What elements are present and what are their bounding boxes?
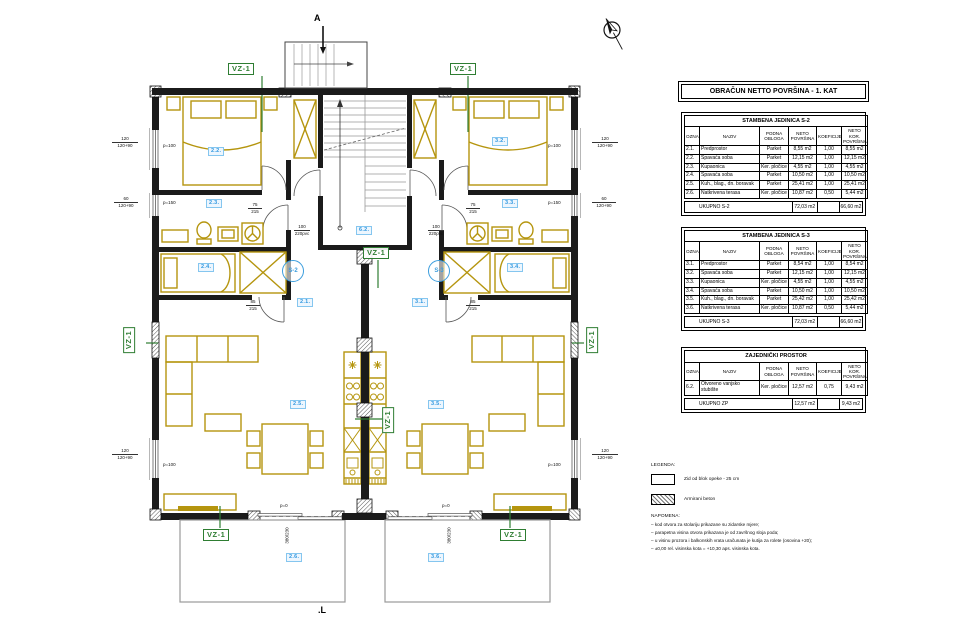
table-cell: 1,00 (817, 270, 842, 279)
sheet-title: OBRAČUN NETTO POVRŠINA - 1. KAT (681, 84, 866, 99)
vz-label-left-wall: VZ-1 (123, 327, 135, 353)
total-neto: 72,03 m2 (792, 317, 817, 328)
dim-value: pvc (302, 231, 309, 236)
table-cell: 3.3. (685, 278, 700, 287)
table-cell: 25,42 m2 (789, 296, 817, 305)
table-cell: Spavaća soba (700, 270, 760, 279)
table-cell: 1,00 (817, 278, 842, 287)
table-cell: Parket (760, 270, 789, 279)
table-cell: 12,57 m2 (789, 381, 817, 396)
table-cell: Spavaća soba (700, 172, 760, 181)
table-cell: 3.5. (685, 296, 700, 305)
table-cell: 12,15 m2 (842, 154, 868, 163)
room-label-2-6: 2.6. (286, 553, 302, 562)
table-cell: 2.1. (685, 146, 700, 155)
room-label-3-5: 3.5. (428, 400, 444, 409)
table-row: 3.5.Kuh., blag., dn. boravakParket25,42 … (685, 296, 868, 305)
vz-label-center: VZ-1 (363, 247, 389, 259)
dim-door-85: 85215 (246, 299, 260, 311)
dim-window-left-top: 120120+90 (112, 136, 138, 148)
column-header: NETO POVRŠINA (789, 127, 817, 146)
table-cell: 10,50 m2 (789, 172, 817, 181)
table-cell: Ker. pločice (760, 278, 789, 287)
column-header: PODNA OBLOGA (760, 362, 789, 381)
table-cell: 2.2. (685, 154, 700, 163)
table-cell: Parket (760, 287, 789, 296)
unit-left-group (146, 76, 388, 602)
table-cell: 1,00 (817, 154, 842, 163)
table-cell: Natkrivena terasa (700, 189, 760, 198)
legend-label: Zid od blok opeke - 25 cm (684, 477, 739, 482)
dim-value: 85 (246, 299, 260, 306)
table-cell: 8,55 m2 (842, 146, 868, 155)
vz-label-right-wall: VZ-1 (586, 327, 598, 353)
dim-value: 120+90 (596, 203, 611, 208)
column-header: NETO KOR. POVRŠINA (842, 242, 868, 261)
dim-value: 215 (469, 209, 477, 214)
total-koef (817, 399, 839, 410)
column-header: OZNAKA (685, 127, 700, 146)
table-row: 2.2.Spavaća sobaParket12,15 m21,0012,15 … (685, 154, 868, 163)
vz-label-top-right: VZ-1 (450, 63, 476, 75)
table-cell: 25,41 m2 (842, 181, 868, 190)
area-tables-panel: OBRAČUN NETTO POVRŠINA - 1. KAT STAMBENA… (681, 84, 866, 413)
table-cell: 3.4. (685, 287, 700, 296)
dim-value: 215 (251, 209, 259, 214)
table-cell: 4,55 m2 (789, 163, 817, 172)
table-cell: 6.2. (685, 381, 700, 396)
dim-value: 60 (592, 196, 616, 203)
note-line: – parapetna visina otvora prikazana je o… (651, 529, 911, 537)
walls-unit (152, 95, 388, 520)
dim-window-right-top: 120120+90 (592, 136, 618, 148)
legend-title: LEGENDA: (651, 463, 866, 468)
furniture (161, 97, 361, 510)
table-cell: 5,44 m2 (842, 189, 868, 198)
notes-block: NAPOMENA: – kod otvora za stolariju prik… (651, 514, 911, 553)
legend-item-wall: Zid od blok opeke - 25 cm (651, 474, 866, 485)
table-row: 2.3.KupaonicaKer. pločice4,55 m21,004,55… (685, 163, 868, 172)
column-header: OZNAKA (685, 362, 700, 381)
table-shared-space: ZAJEDNIČKI PROSTOR OZNAKA NAZIV PODNA OB… (681, 347, 866, 413)
room-label-3-3: 3.3. (502, 199, 518, 208)
table-cell: 0,75 (817, 381, 842, 396)
table-row: 3.1.PredprostorParket8,54 m21,008,54 m2 (685, 261, 868, 270)
note-line: – u visinu prozora i balkonskih vrata ur… (651, 537, 911, 545)
table-cell: 8,54 m2 (789, 261, 817, 270)
table-title: STAMBENA JEDINICA S-2 (685, 116, 868, 127)
table-row: 2.4.Spavaća sobaParket10,50 m21,0010,50 … (685, 172, 868, 181)
table-cell: 1,00 (817, 287, 842, 296)
dim-value: 100 (294, 224, 310, 231)
table-cell: 5,44 m2 (842, 305, 868, 314)
column-header: NAZIV (700, 127, 760, 146)
column-header: NETO POVRŠINA (789, 242, 817, 261)
table-cell: 0,50 (817, 189, 842, 198)
column-header: OZNAKA (685, 242, 700, 261)
table-cell: Otvoreno vanjsko stubište (700, 381, 760, 396)
column-header: KOEFICIJENT (817, 242, 842, 261)
table-row: 2.1.PredprostorParket8,55 m21,008,55 m2 (685, 146, 868, 155)
table-cell: Ker. pločice (760, 163, 789, 172)
table-cell: Parket (760, 154, 789, 163)
table-cell: 12,15 m2 (789, 270, 817, 279)
dim-sliding-door: 380/230 (447, 521, 452, 551)
unit-right-group (342, 76, 584, 602)
table-cell: Predprostor (700, 261, 760, 270)
room-label-6-2: 6.2. (356, 226, 372, 235)
table-cell: Parket (760, 172, 789, 181)
total-koef (817, 202, 839, 213)
dim-value: 120+90 (597, 455, 612, 460)
table-cell: 12,15 m2 (789, 154, 817, 163)
staircase (324, 95, 406, 230)
table-cell: Kupaonica (700, 278, 760, 287)
dim-sliding-door: 380/230 (285, 521, 290, 551)
stair-enclosure-top (285, 42, 367, 88)
table-cell: 3.1. (685, 261, 700, 270)
table-cell: Spavaća soba (700, 154, 760, 163)
table-cell: Ker. pločice (760, 305, 789, 314)
table-cell: Parket (760, 296, 789, 305)
table-cell: 8,54 m2 (842, 261, 868, 270)
dim-door-100: 100220pvc (428, 224, 444, 236)
table-cell: 4,55 m2 (789, 278, 817, 287)
floor-plan-drawing (0, 0, 660, 640)
table-row: 2.6.Natkrivena terasaKer. pločice10,87 m… (685, 189, 868, 198)
total-koef (817, 317, 839, 328)
table-row: 3.6.Natkrivena terasaKer. pločice10,87 m… (685, 305, 868, 314)
column-header: NETO KOR. POVRŠINA (842, 362, 868, 381)
column-header: NAZIV (700, 362, 760, 381)
table-cell: 0,50 (817, 305, 842, 314)
column-header: NETO KOR. POVRŠINA (842, 127, 868, 146)
legend-item-concrete: Armirani beton (651, 494, 866, 505)
dim-door-75: 75215 (248, 202, 262, 214)
table-row: 6.2.Otvoreno vanjsko stubišteKer. pločic… (685, 381, 868, 396)
vz-label-bottom-right: VZ-1 (500, 529, 526, 541)
table-cell: 9,43 m2 (842, 381, 868, 396)
unit-badge-s3: S-3 (428, 260, 450, 282)
table-row: 3.3.KupaonicaKer. pločice4,55 m21,004,55… (685, 278, 868, 287)
section-label-top: A (314, 13, 321, 23)
table-title: ZAJEDNIČKI PROSTOR (685, 351, 868, 362)
sliding-door (258, 514, 342, 520)
north-arrow-icon (602, 17, 625, 52)
table-cell: 2.4. (685, 172, 700, 181)
room-label-2-3: 2.3. (206, 199, 222, 208)
dim-value: 120 (112, 448, 138, 455)
table-cell: Ker. pločice (760, 381, 789, 396)
table-cell: 1,00 (817, 181, 842, 190)
table-cell: 4,55 m2 (842, 278, 868, 287)
table-cell: 25,42 m2 (842, 296, 868, 305)
column-header: KOEFICIJENT (817, 362, 842, 381)
dim-value: 215 (469, 306, 477, 311)
dim-value: 75 (248, 202, 262, 209)
table-cell: 10,50 m2 (789, 287, 817, 296)
table-cell: 8,55 m2 (789, 146, 817, 155)
total-label: UKUPNO S-3 (685, 317, 792, 328)
table-total-row: UKUPNO S-3 72,03 m2 66,60 m2 (684, 316, 863, 329)
table-cell: Ker. pločice (760, 189, 789, 198)
unit-badge-s2: S-2 (282, 260, 304, 282)
floor-plan-sheet: A .L 2.2. 2.3. 2.4. 2.1. 2.5. 2.6. 6.2. … (0, 0, 960, 640)
dim-parapet: p=150 (548, 200, 561, 205)
table-cell: Kupaonica (700, 163, 760, 172)
table-row: 3.4.Spavaća sobaParket10,50 m21,0010,50 … (685, 287, 868, 296)
dim-door-75: 75215 (466, 202, 480, 214)
dim-value: 120+90 (118, 203, 133, 208)
total-kor: 66,60 m2 (839, 202, 862, 213)
dim-door-100: 100220pvc (294, 224, 310, 236)
table-unit-s3: STAMBENA JEDINICA S-3 OZNAKA NAZIV PODNA… (681, 227, 866, 331)
table-cell: 1,00 (817, 296, 842, 305)
table-title: STAMBENA JEDINICA S-3 (685, 231, 868, 242)
total-kor: 9,43 m2 (839, 399, 862, 410)
dim-parapet-zero: p=0 (442, 503, 450, 508)
total-neto: 12,57 m2 (792, 399, 817, 410)
legend-label: Armirani beton (684, 497, 715, 502)
table-cell: 1,00 (817, 163, 842, 172)
dim-value: 120 (592, 136, 618, 143)
vz-label-kitchen-shaft: VZ-1 (382, 407, 394, 433)
table-cell: 10,50 m2 (842, 287, 868, 296)
vz-label-bottom-left: VZ-1 (203, 529, 229, 541)
dim-window-left-bottom: 120120+90 (112, 448, 138, 460)
dim-window-right-mid: 60120+90 (592, 196, 616, 208)
dim-value: 120+90 (117, 143, 132, 148)
table-cell: Parket (760, 181, 789, 190)
legend: LEGENDA: Zid od blok opeke - 25 cm Armir… (651, 463, 866, 514)
note-line: – kod otvora za stolariju prikazane su z… (651, 521, 911, 529)
table-cell: 1,00 (817, 146, 842, 155)
dim-parapet: p=100 (548, 462, 561, 467)
table-cell: 10,50 m2 (842, 172, 868, 181)
table-cell: Natkrivena terasa (700, 305, 760, 314)
table-cell: 4,55 m2 (842, 163, 868, 172)
dim-window-right-bottom: 120120+90 (592, 448, 618, 460)
table-cell: 3.6. (685, 305, 700, 314)
table-total-row: UKUPNO S-2 72,03 m2 66,60 m2 (684, 201, 863, 214)
terrace (178, 506, 345, 602)
dim-door-85: 85215 (466, 299, 480, 311)
dim-parapet-zero: p=0 (280, 503, 288, 508)
dim-parapet: p=100 (163, 143, 176, 148)
dim-parapet: p=100 (163, 462, 176, 467)
room-label-3-6: 3.6. (428, 553, 444, 562)
section-label-bottom: .L (318, 605, 326, 615)
room-label-3-1: 3.1. (412, 298, 428, 307)
dim-value: 120 (112, 136, 138, 143)
table-cell: 25,41 m2 (789, 181, 817, 190)
table-row: 2.5.Kuh., blag., dn. boravakParket25,41 … (685, 181, 868, 190)
wall-swatch-icon (651, 474, 675, 485)
table-cell: 12,15 m2 (842, 270, 868, 279)
total-label: UKUPNO S-2 (685, 202, 792, 213)
dim-value: 120+90 (117, 455, 132, 460)
room-label-2-5: 2.5. (290, 400, 306, 409)
column-header: NAZIV (700, 242, 760, 261)
table-cell: Parket (760, 146, 789, 155)
total-neto: 72,03 m2 (792, 202, 817, 213)
concrete-swatch-icon (651, 494, 675, 505)
room-label-3-2: 3.2. (492, 137, 508, 146)
column-header: PODNA OBLOGA (760, 242, 789, 261)
table-cell: 10,87 m2 (789, 189, 817, 198)
total-label: UKUPNO ZP (685, 399, 792, 410)
dim-value: 60 (114, 196, 138, 203)
dim-value: 215 (249, 306, 257, 311)
room-label-3-4: 3.4. (507, 263, 523, 272)
dim-parapet: p=150 (163, 200, 176, 205)
dim-value: 100 (428, 224, 444, 231)
table-cell: Parket (760, 261, 789, 270)
vz-label-top-left: VZ-1 (228, 63, 254, 75)
total-kor: 66,60 m2 (839, 317, 862, 328)
column-header: KOEFICIJENT (817, 127, 842, 146)
dim-value: 120+90 (597, 143, 612, 148)
room-label-2-4: 2.4. (198, 263, 214, 272)
note-line: – ±0,00 rel. visinska kota = +10,30 aps.… (651, 545, 911, 553)
table-row: 3.2.Spavaća sobaParket12,15 m21,0012,15 … (685, 270, 868, 279)
table-cell: 1,00 (817, 261, 842, 270)
dim-value: pvc (436, 231, 443, 236)
table-cell: 3.2. (685, 270, 700, 279)
notes-title: NAPOMENA: (651, 514, 911, 519)
table-cell: Spavaća soba (700, 287, 760, 296)
table-total-row: UKUPNO ZP 12,57 m2 9,43 m2 (684, 398, 863, 411)
dim-window-left-mid: 60120+90 (114, 196, 138, 208)
table-cell: Kuh., blag., dn. boravak (700, 296, 760, 305)
table-cell: 1,00 (817, 172, 842, 181)
table-cell: 2.3. (685, 163, 700, 172)
table-cell: 2.5. (685, 181, 700, 190)
room-label-2-2: 2.2. (208, 147, 224, 156)
room-label-2-1: 2.1. (297, 298, 313, 307)
table-cell: 2.6. (685, 189, 700, 198)
table-cell: Kuh., blag., dn. boravak (700, 181, 760, 190)
dim-parapet: p=100 (548, 143, 561, 148)
column-header: PODNA OBLOGA (760, 127, 789, 146)
table-cell: 10,87 m2 (789, 305, 817, 314)
dim-value: 75 (466, 202, 480, 209)
dim-value: 85 (466, 299, 480, 306)
table-unit-s2: STAMBENA JEDINICA S-2 OZNAKA NAZIV PODNA… (681, 112, 866, 216)
column-header: NETO POVRŠINA (789, 362, 817, 381)
dim-value: 120 (592, 448, 618, 455)
table-cell: Predprostor (700, 146, 760, 155)
